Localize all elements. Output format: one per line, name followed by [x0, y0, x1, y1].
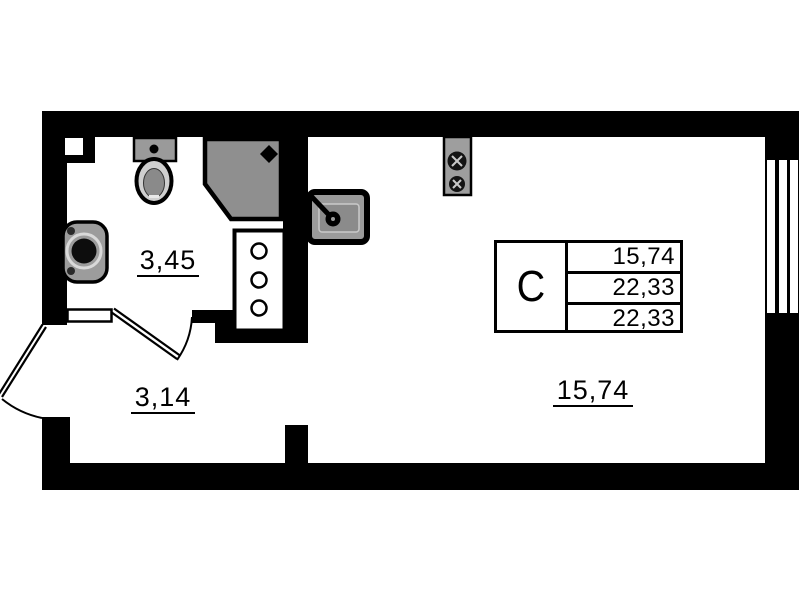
basin-tap	[67, 227, 75, 235]
entrance-door-icon	[0, 325, 46, 419]
wall-bathroom-divider	[283, 111, 308, 343]
toilet-flush-button	[150, 145, 159, 154]
wall-corner-notch	[65, 138, 83, 155]
door-leaf	[0, 325, 43, 395]
wall-left-upper	[42, 111, 67, 325]
sink-faucet-dot	[331, 217, 335, 221]
bathroom-door-icon	[111, 309, 192, 361]
unit-area-row: 22,33	[568, 305, 680, 333]
unit-area-rows: 15,74 22,33 22,33	[568, 243, 680, 330]
unit-type-label: С	[517, 262, 546, 312]
washbasin-icon	[63, 222, 107, 282]
basin-drain	[72, 239, 97, 264]
unit-area-row: 15,74	[568, 243, 680, 274]
toilet-bowl-inner	[144, 169, 165, 198]
wall-stub-shaft-left	[215, 310, 235, 343]
shower-icon	[205, 139, 281, 219]
window-icon	[767, 160, 798, 313]
bathroom-area-label: 3,45	[137, 247, 199, 277]
riser-pipe	[252, 273, 267, 288]
stove-icon	[444, 137, 471, 195]
hallway-area-label: 3,14	[131, 384, 195, 414]
window-pane	[790, 160, 798, 313]
door-leaf	[2, 327, 46, 397]
wall-thin-partition	[68, 310, 112, 322]
door-leaf	[114, 309, 180, 356]
kitchen-sink-icon	[309, 192, 367, 242]
riser-pipe	[252, 301, 267, 316]
toilet-bowl-mark	[149, 195, 159, 198]
window-pane	[779, 160, 787, 313]
floorplan-canvas: 3,45 3,14 15,74 С 15,74 22,33 22,33	[0, 0, 799, 600]
unit-legend-table: С 15,74 22,33 22,33	[494, 240, 683, 333]
wall-top	[42, 111, 799, 137]
toilet-icon	[134, 138, 176, 203]
wall-left-lower	[42, 417, 70, 467]
living-area-label: 15,74	[553, 377, 633, 407]
basin-tap	[67, 267, 75, 275]
plumbing-shaft-icon	[235, 231, 285, 331]
riser-pipe	[252, 244, 267, 259]
door-swing-arc	[177, 317, 192, 360]
unit-type-cell: С	[497, 243, 568, 330]
wall-bottom	[42, 463, 799, 490]
window-pane	[767, 160, 775, 313]
door-leaf	[111, 312, 177, 359]
door-swing-arc	[2, 399, 42, 418]
wall-hall-divider-stub	[285, 425, 308, 467]
unit-area-row: 22,33	[568, 274, 680, 305]
